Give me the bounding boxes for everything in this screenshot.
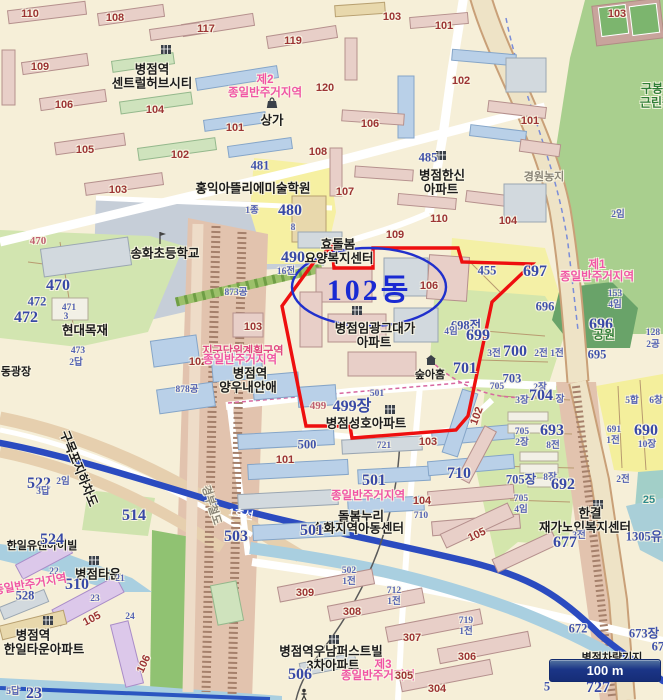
map-label: 110 [21, 8, 39, 20]
map-label: 120 [316, 82, 334, 94]
map-label: 307 [403, 632, 421, 644]
map-label: 109 [386, 229, 404, 241]
map-label: 510 [65, 576, 89, 594]
map-label: 장 [556, 391, 565, 405]
map-label: 506 [288, 666, 312, 684]
map-label: 692 [551, 476, 575, 494]
map-label: 홍익아뜰리에미술학원 [195, 178, 310, 197]
map-label: 구목포지하차도 [56, 427, 104, 509]
map-label: 501 [300, 522, 324, 540]
map-label: 23 [90, 594, 100, 604]
map-label: 103 [383, 11, 401, 23]
map-label: 3전 [487, 345, 501, 359]
map-label: 106 [135, 653, 154, 675]
map-label: 472 [14, 309, 38, 327]
label-layer: 110103108103117101119109제2종일반주거지역병점역센트럴허… [0, 0, 663, 700]
map-label: 1전 [550, 345, 564, 359]
map-label: 528 [16, 589, 35, 604]
map-label: 695 [588, 348, 607, 363]
map-label: 상가 [260, 110, 283, 129]
map-label: 아파트 [357, 332, 392, 351]
map-label: 309 [296, 587, 314, 599]
map-label: 2전 [534, 345, 548, 359]
map-label: 종일반주거지역 [228, 84, 302, 100]
map-label: 1전 [459, 623, 473, 637]
map-label: 699 [466, 327, 490, 345]
map-label: 5답 [6, 683, 20, 697]
map-label: 1종 [245, 202, 259, 216]
map-label: 481 [251, 159, 270, 174]
map-label: 송화초등학교 [130, 243, 199, 262]
map-label: 10장 [638, 436, 656, 450]
map-label: 710 [414, 511, 428, 521]
map-label: 103 [244, 321, 262, 333]
scale-bar-label: 100 m [587, 663, 624, 678]
map-label: 499 [310, 400, 327, 412]
map-label: 104 [413, 495, 431, 507]
map-label: 878공 [176, 381, 199, 395]
map-label: 102 [468, 405, 486, 426]
highlight-label: 102동 [327, 265, 412, 309]
map-label: 6창 [649, 392, 663, 406]
map-label: 105 [466, 526, 488, 545]
map-label: 107 [336, 186, 354, 198]
map-label: 110 [430, 213, 448, 225]
map-label: 503 [224, 528, 248, 546]
map-label: 4임 [444, 323, 458, 337]
map-label: 3답 [36, 483, 50, 497]
map-label: 병점성호아파트 [326, 413, 407, 432]
map-label: 677 [553, 534, 577, 552]
map-label: 8전 [546, 437, 560, 451]
map-label: 103 [109, 184, 127, 196]
map-canvas[interactable]: 110103108103117101119109제2종일반주거지역병점역센트럴허… [0, 0, 663, 700]
map-label: 2장 [515, 434, 529, 448]
map-label: 경부철도 [198, 483, 226, 526]
map-label: 한일타운아파트 [4, 639, 85, 658]
map-label: 8 [291, 223, 296, 233]
map-label: 21 [115, 574, 125, 584]
map-label: 105 [76, 144, 94, 156]
map-label: 16전 [277, 263, 295, 277]
map-label: 종일반주거지역 [560, 268, 634, 284]
map-label: 1전 [606, 432, 620, 446]
map-label: 현대목재 [62, 320, 108, 339]
map-label: 양우내안애 [219, 377, 277, 396]
map-label: 104 [146, 104, 164, 116]
map-label: 701 [453, 360, 477, 378]
map-label: 103 [419, 436, 437, 448]
map-label: 2임 [56, 473, 70, 487]
map-label: 703 [503, 372, 522, 387]
map-label: 485 [419, 151, 438, 166]
map-label: 동광장 [1, 363, 31, 379]
map-label: 종일반주거지역 [331, 487, 405, 503]
map-label: 705장 [506, 469, 536, 488]
map-label: 480 [278, 202, 302, 220]
map-label: 103 [608, 8, 626, 20]
map-label: 2답 [69, 354, 83, 368]
map-label: 경원농지 [524, 168, 564, 184]
map-label: 108 [309, 146, 327, 158]
map-label: 710 [447, 465, 471, 483]
map-label: 500 [298, 438, 317, 453]
map-label: 305 [395, 670, 413, 682]
map-label: 5합 [625, 392, 639, 406]
map-label: 672 [569, 622, 588, 637]
map-label: 2전 [616, 471, 630, 485]
map-label: 105 [81, 609, 103, 628]
map-label: 23 [26, 685, 42, 700]
map-label: 308 [343, 606, 361, 618]
map-label: 696 [536, 300, 555, 315]
map-label: 306 [458, 651, 476, 663]
map-label: 514 [122, 507, 146, 525]
map-label: 101 [435, 20, 453, 32]
map-label: 3장 [515, 392, 529, 406]
map-label: 109 [31, 61, 49, 73]
map-label: 455 [478, 264, 497, 279]
map-label: 524 [40, 531, 64, 549]
map-label: 470 [30, 235, 47, 247]
map-label: 숲아홈 [415, 366, 445, 382]
map-label: 304 [428, 683, 446, 695]
map-label: 873공 [225, 284, 248, 298]
map-label: 117 [197, 23, 215, 35]
map-label: 공원 [593, 326, 615, 343]
map-label: 1호선 [227, 504, 254, 523]
scale-bar: 100 m [549, 659, 661, 682]
map-label: 송화지역아동센터 [312, 518, 404, 537]
map-label: 1전 [342, 573, 356, 587]
map-label: 101 [226, 122, 244, 134]
map-label: 근린공원 [640, 94, 663, 111]
map-label: 센트럴허브시티 [112, 73, 193, 92]
map-label: 1전 [387, 593, 401, 607]
map-label: 1305유 [626, 526, 663, 545]
map-label: 470 [46, 277, 70, 295]
map-label: 5 [544, 680, 550, 695]
map-label: 705 [490, 382, 504, 392]
map-label: 요양복지센터 [304, 248, 373, 267]
map-label: 25 [643, 494, 655, 506]
map-label: 108 [106, 12, 124, 24]
map-label: 106 [361, 118, 379, 130]
map-label: 472 [28, 295, 47, 310]
map-label: 102 [452, 75, 470, 87]
map-label: 704 [529, 387, 553, 405]
map-label: 2공 [646, 336, 660, 350]
map-label: 721 [377, 441, 391, 451]
map-label: 106 [55, 99, 73, 111]
map-label: 101 [521, 115, 539, 127]
map-label: 아파트 [424, 179, 459, 198]
map-label: 673 [652, 640, 663, 655]
map-label: 106 [420, 280, 438, 292]
map-label: 119 [284, 35, 302, 47]
map-label: 101 [276, 454, 294, 466]
map-label: 2임 [611, 206, 625, 220]
map-label: 501 [370, 389, 384, 399]
map-label: 4임 [514, 501, 528, 515]
map-label: 4임 [608, 296, 622, 310]
map-label: 700 [503, 343, 527, 361]
map-label: 697 [523, 263, 547, 281]
map-label: 24 [125, 612, 135, 622]
map-label: 104 [499, 215, 517, 227]
map-label: 102 [171, 149, 189, 161]
